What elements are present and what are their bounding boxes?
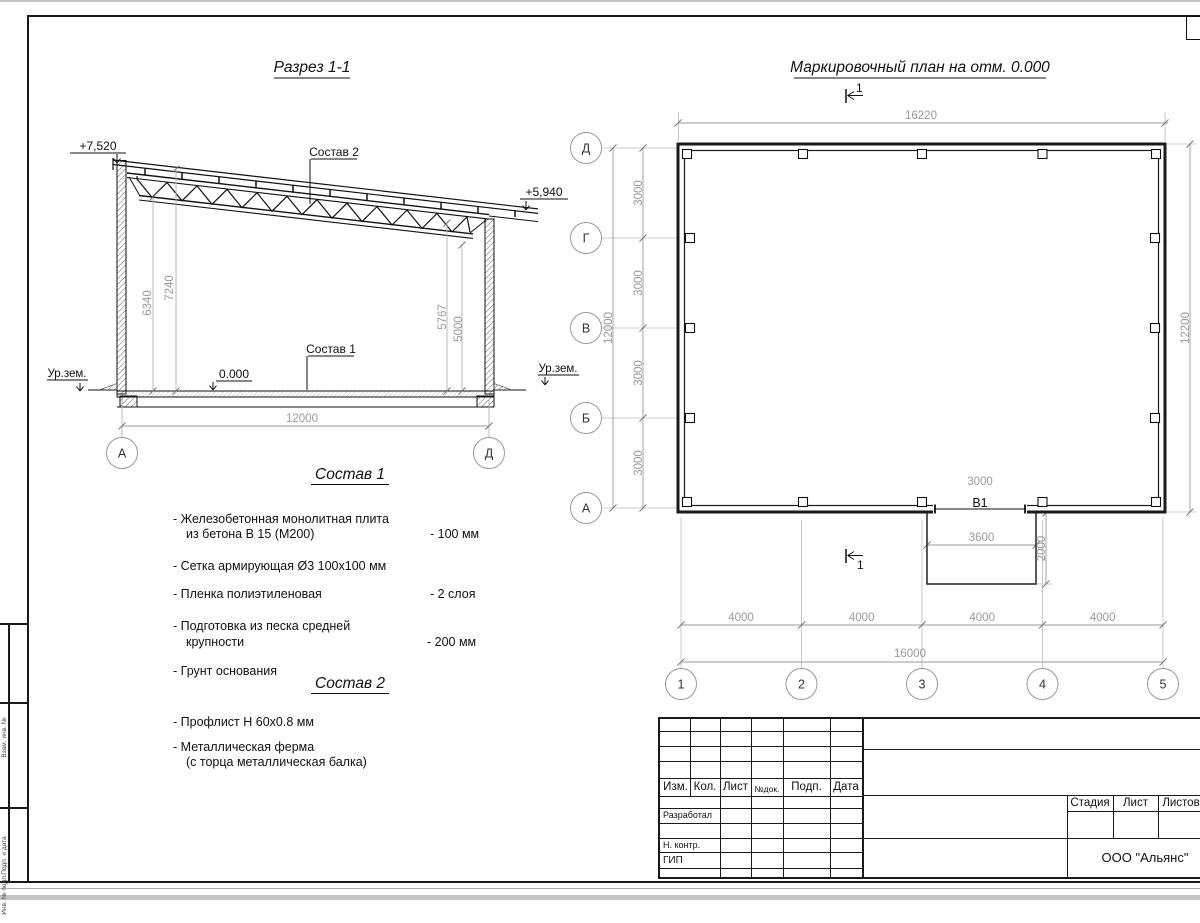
plan-title: Маркировочный план на отм. 0.000 — [790, 59, 1050, 76]
titleblock-bottom — [658, 877, 1200, 879]
dim-label: 16220 — [905, 110, 937, 122]
dim-label: 3000 — [967, 476, 993, 488]
side-strip-label: Инв. № подл. — [0, 866, 9, 923]
dim-label: 4000 — [849, 612, 875, 624]
dim-label: 3000 — [633, 270, 645, 296]
footing-left — [120, 396, 137, 407]
right-wall — [485, 219, 494, 394]
tb-hline — [658, 731, 862, 732]
list-item: крупности — [186, 635, 244, 649]
tb-hline — [658, 823, 862, 824]
tb-vline — [720, 717, 721, 878]
dim-label: 12000 — [603, 312, 615, 344]
list-item: - Сетка армирующая Ø3 100х100 мм — [173, 559, 386, 573]
dim-label: 4000 — [728, 612, 754, 624]
axis-bubble-label: В — [582, 322, 590, 336]
side-strip-label: Взам. инв. № — [0, 700, 9, 775]
tb-hline — [862, 795, 1200, 796]
roof-deck — [113, 158, 538, 222]
elevation-label-top: +7,520 — [79, 139, 116, 153]
tb-hline — [862, 838, 1200, 839]
composition2-tag: Состав 2 — [309, 145, 359, 159]
list-item: из бетона В 15 (М200) — [186, 527, 314, 541]
list-item-value: - 100 мм — [430, 527, 479, 541]
section-drawing: Разрез 1-1 — [0, 0, 600, 490]
titleblock-top — [658, 717, 1200, 719]
list-item: - Грунт основания — [173, 664, 277, 678]
tb-header-cell: Лист — [720, 781, 751, 793]
section-mark-label: 1 — [856, 81, 863, 95]
dim-label: 16000 — [894, 648, 926, 660]
tb-header-cell: Подп. — [783, 781, 830, 793]
tb-role: Н. контр. — [663, 840, 700, 850]
list-item: - Металлическая ферма — [173, 740, 314, 754]
list-item: - Пленка полиэтиленовая — [173, 587, 322, 601]
gate-label: В1 — [972, 496, 987, 510]
axis-bubble-label: Д — [485, 447, 494, 461]
dim-label: 3000 — [633, 360, 645, 386]
axis-bubble-label: 1 — [678, 678, 685, 692]
tb-vline — [830, 717, 831, 878]
tb-stage-cell: Стадия — [1067, 797, 1113, 809]
tb-header-cell: Дата — [830, 781, 862, 793]
elevation-label-right: +5,940 — [525, 185, 562, 199]
dim-label: 3600 — [969, 532, 995, 544]
tb-hline — [658, 868, 862, 869]
dim-label: 4000 — [969, 612, 995, 624]
purlin-ticks — [145, 169, 515, 217]
tb-header-cell: Кол. — [690, 781, 720, 793]
tb-stage-cell: Листов — [1158, 797, 1200, 809]
tb-hline — [658, 852, 862, 853]
ground-wedge-right — [494, 384, 512, 391]
section-mark-label: 1 — [857, 558, 864, 572]
axis-bubble-label: 4 — [1039, 678, 1046, 692]
list-item: - Подготовка из песка средней — [173, 619, 350, 633]
side-strip-divider — [0, 623, 27, 625]
section-title: Разрез 1-1 — [274, 59, 351, 76]
axis-bubble-label: 2 — [798, 678, 805, 692]
tb-hline — [658, 746, 862, 747]
dim-label: 3000 — [633, 180, 645, 206]
section-axis-bubbles — [107, 438, 505, 469]
tb-hline — [1067, 811, 1200, 812]
tb-header-cell: Изм. — [661, 781, 690, 793]
tb-hline — [658, 838, 862, 839]
composition2-title: Состав 2 — [290, 675, 410, 693]
drawing-sheet: Взам. инв. № Подп. и дата Инв. № подл. Р… — [0, 0, 1200, 900]
tb-hline — [658, 761, 862, 762]
sheet-bottom-strip — [0, 895, 1200, 900]
axis-bubble-label: А — [582, 502, 591, 516]
tb-vline — [783, 717, 784, 878]
axis-bubble-label: 5 — [1160, 678, 1167, 692]
frame-bottom — [0, 881, 1200, 883]
composition1-tag: Состав 1 — [306, 342, 356, 356]
composition1-title: Состав 1 — [290, 466, 410, 484]
axis-bubble-label: Б — [582, 412, 590, 426]
zero-level-label: 0.000 — [219, 367, 249, 381]
axis-bubble-label: Д — [582, 142, 591, 156]
titleblock-left — [658, 717, 660, 878]
tb-role: Разработал — [663, 810, 712, 820]
ground-wedge-left — [99, 384, 117, 391]
sheet-bottom-edge-line — [0, 888, 1200, 889]
list-item: - Железобетонная монолитная плита — [173, 512, 389, 526]
plan-outer-wall — [678, 144, 1165, 512]
ramp — [927, 513, 1036, 584]
ground-label-left: Ур.зем. — [47, 368, 86, 380]
company-name: ООО "Альянс" — [1067, 850, 1200, 865]
height-dim-label: 5000 — [453, 316, 465, 342]
axis-bubble-label: 3 — [919, 678, 926, 692]
list-item-value: - 2 слоя — [430, 587, 475, 601]
tb-role: ГИП — [663, 855, 683, 866]
list-item: (с торца металлическая балка) — [186, 755, 367, 769]
plan-drawing: Маркировочный план на отм. 0.000 — [560, 30, 1200, 710]
titleblock-divider — [862, 717, 864, 878]
dim-label: 2000 — [1036, 536, 1048, 562]
tb-hline — [658, 778, 862, 779]
tb-vline — [751, 717, 752, 878]
axis-bubble-label: Г — [583, 232, 590, 246]
height-dim-label: 7240 — [164, 275, 176, 301]
height-dim-label: 5767 — [437, 304, 449, 330]
list-item: - Профлист Н 60х0.8 мм — [173, 715, 314, 729]
tb-header-cell: №док. — [751, 784, 783, 794]
dim-label: 3000 — [633, 450, 645, 476]
tb-hline — [658, 796, 862, 797]
tb-hline — [862, 749, 1200, 750]
footing-right — [477, 396, 494, 407]
span-dim-label: 12000 — [286, 413, 318, 425]
dim-label: 12200 — [1180, 312, 1192, 344]
list-item-value: - 200 мм — [427, 635, 476, 649]
tb-stage-cell: Лист — [1113, 797, 1158, 809]
tb-hline — [658, 808, 862, 809]
height-dim-label: 6340 — [142, 290, 154, 316]
left-wall — [117, 161, 126, 395]
dim-label: 4000 — [1090, 612, 1116, 624]
axis-bubble-label: А — [118, 447, 127, 461]
